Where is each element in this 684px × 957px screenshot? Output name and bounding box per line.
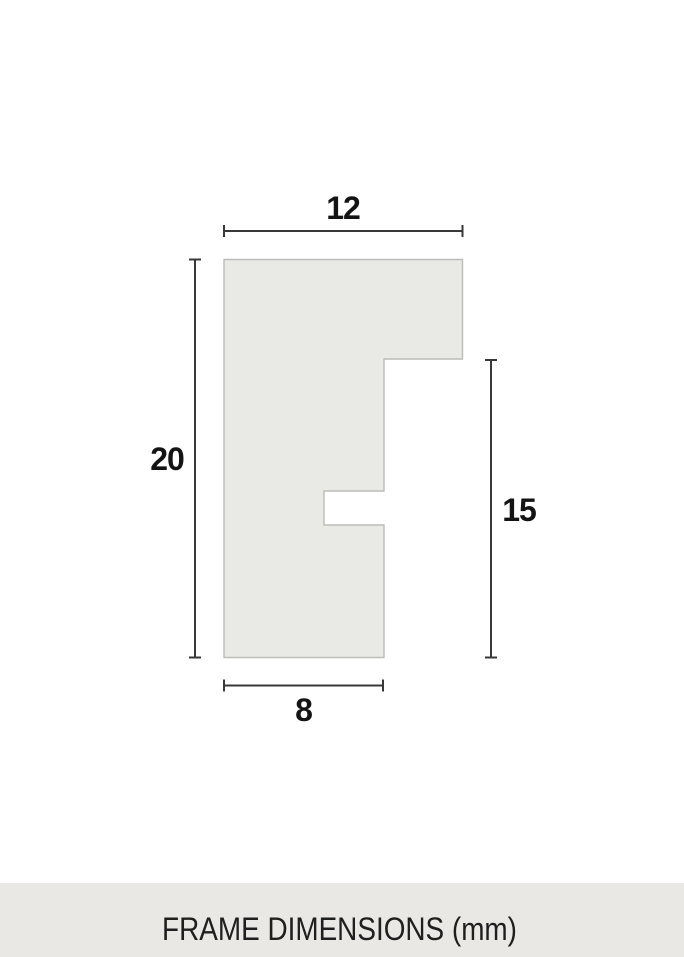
svg-text:20: 20 [150,441,184,477]
svg-text:15: 15 [502,492,536,528]
svg-text:8: 8 [295,692,313,728]
svg-text:FRAME DIMENSIONS (mm): FRAME DIMENSIONS (mm) [162,912,517,947]
svg-text:12: 12 [326,190,360,226]
